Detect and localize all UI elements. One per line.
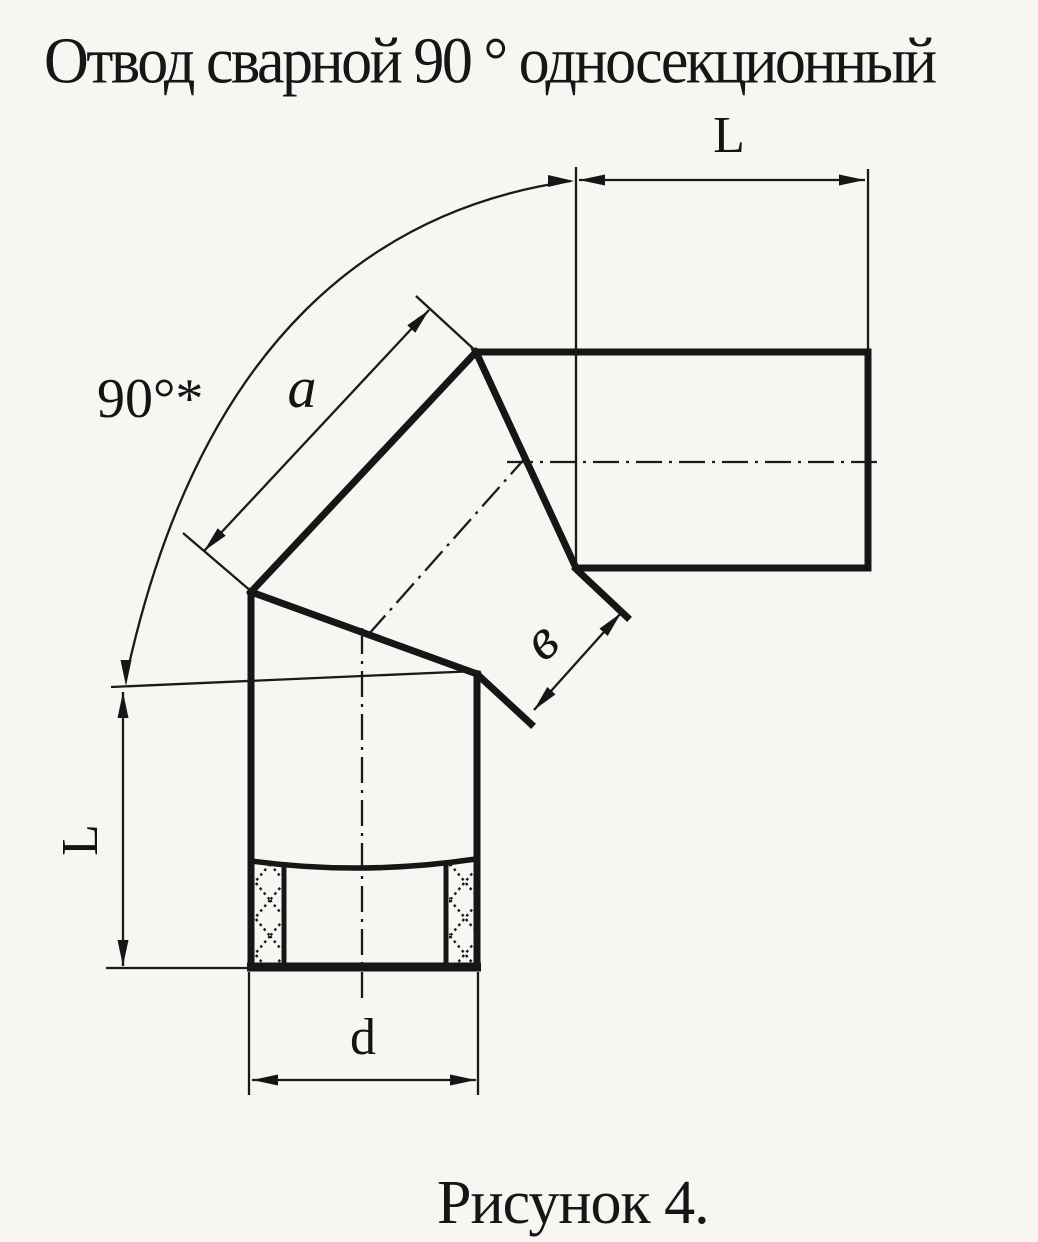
arrowhead bbox=[118, 692, 129, 718]
dimension-line bbox=[204, 310, 429, 551]
hatch-band-left bbox=[253, 862, 281, 964]
extension-tick bbox=[416, 296, 478, 353]
elbow-technical-drawing: L L 90°* a в d bbox=[0, 0, 1038, 1242]
arrowhead bbox=[839, 175, 865, 186]
figure-caption: Рисунок 4. bbox=[437, 1168, 709, 1239]
label-L-left: L bbox=[52, 824, 109, 856]
arrowhead bbox=[450, 1075, 476, 1086]
reference-line-top bbox=[111, 671, 477, 687]
extension-tick bbox=[183, 533, 252, 592]
label-angle-90: 90°* bbox=[97, 368, 203, 430]
arrowhead bbox=[118, 940, 129, 966]
label-d: d bbox=[350, 1009, 376, 1066]
centerlines bbox=[362, 456, 879, 1003]
label-b: в bbox=[510, 607, 571, 673]
extension-tick bbox=[478, 675, 531, 724]
arrowhead bbox=[121, 660, 132, 686]
angle-arc-90 bbox=[111, 175, 574, 687]
dimension-a bbox=[183, 296, 478, 592]
hatch-band-right bbox=[449, 862, 475, 964]
middle-section-centerline bbox=[368, 456, 527, 635]
horizontal-pipe-outline bbox=[476, 352, 868, 568]
dimension-L-left bbox=[106, 692, 248, 968]
arrowhead bbox=[579, 175, 605, 186]
arrowhead bbox=[252, 1075, 278, 1086]
weld-joint-lower-edge bbox=[251, 592, 477, 674]
arrowhead bbox=[548, 175, 574, 187]
extension-tick bbox=[576, 569, 627, 617]
label-a: a bbox=[288, 355, 317, 420]
middle-section-top-edge bbox=[251, 352, 476, 592]
label-L-top: L bbox=[713, 107, 745, 164]
dimension-L-top bbox=[576, 167, 868, 565]
